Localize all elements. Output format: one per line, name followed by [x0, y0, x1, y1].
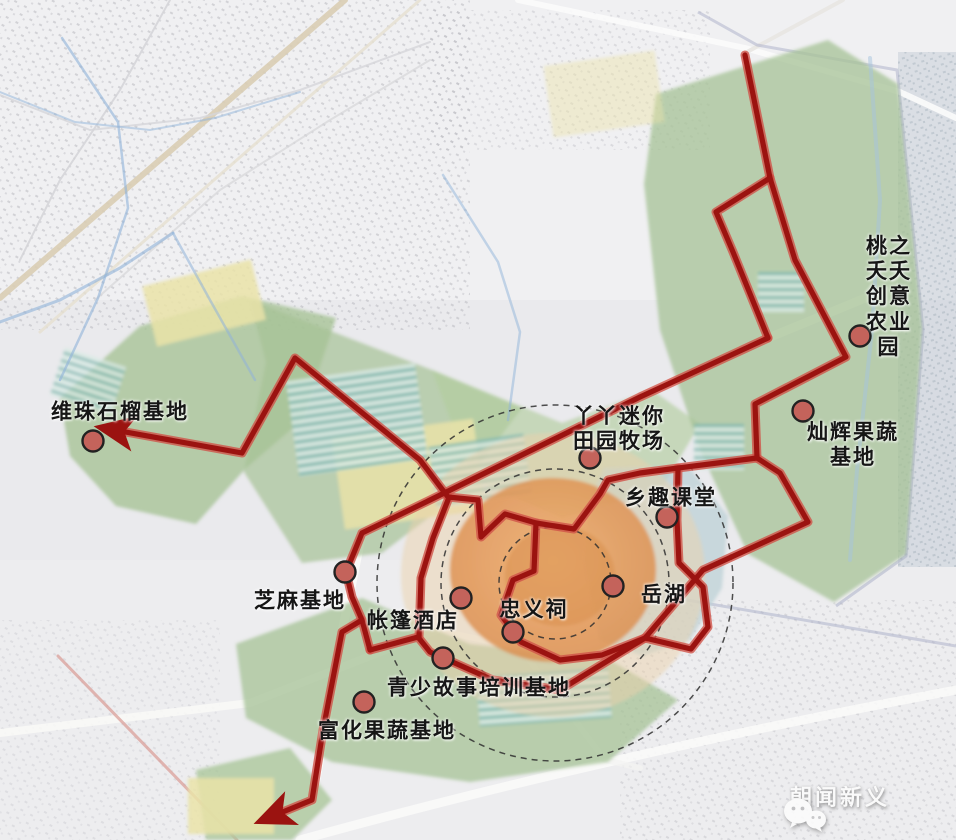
striped-field: [758, 272, 804, 312]
location-marker-yuehu: [603, 576, 624, 597]
location-marker-canhui: [793, 401, 814, 422]
yellow-field: [188, 778, 274, 834]
location-marker-zhima: [335, 562, 356, 583]
location-marker-qingshao: [433, 648, 454, 669]
location-marker-yaya: [580, 448, 601, 469]
location-marker-weizhu: [83, 431, 104, 452]
map-graphics: [0, 0, 956, 840]
location-marker-fuhua: [354, 692, 375, 713]
striped-field: [286, 363, 428, 476]
location-marker-zhongyi: [503, 622, 524, 643]
location-marker-xiangqu: [657, 507, 678, 528]
location-marker-taozhi: [850, 326, 871, 347]
location-marker-zhangpeng: [451, 588, 472, 609]
planning-map: 维珠石榴基地桃之夭夭 创意农业园灿辉果蔬基地丫丫迷你 田园牧场乡趣课堂岳湖忠义祠…: [0, 0, 956, 840]
watermark: 朝闻新义: [782, 772, 952, 820]
